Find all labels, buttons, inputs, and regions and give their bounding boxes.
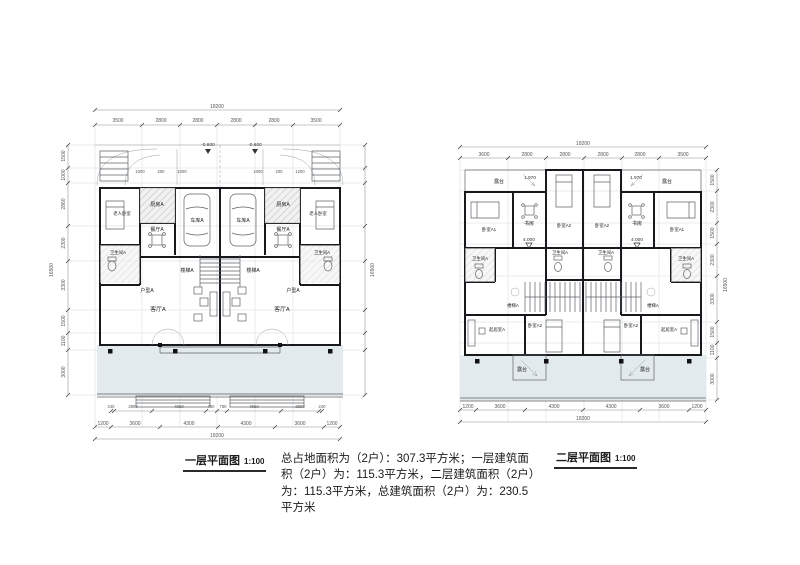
dim-label: 2800 bbox=[634, 152, 645, 158]
dim-label: 2800 bbox=[268, 118, 279, 124]
dim-label: 1100 bbox=[61, 335, 67, 346]
room-label-terrace: 露台 bbox=[494, 178, 504, 185]
room-label-terrace: 露台 bbox=[517, 366, 527, 373]
level-mark: 4.000 bbox=[631, 237, 643, 243]
dim-label: 1000 bbox=[135, 169, 145, 174]
dim-label: 3500 bbox=[677, 152, 688, 158]
dim-label: 3600 bbox=[294, 421, 305, 427]
dim-label: 2800 bbox=[559, 152, 570, 158]
entry-steps-right bbox=[312, 151, 340, 181]
dim-label: 4300 bbox=[548, 404, 559, 410]
dim-label: 1000 bbox=[61, 169, 67, 180]
slope-mark: 1.970 bbox=[524, 175, 536, 181]
room-label-study: 书房 bbox=[632, 220, 642, 227]
plan2-caption-title: 二层平面图 bbox=[556, 452, 611, 464]
dim-label: 16500 bbox=[370, 263, 376, 277]
stair-tag bbox=[511, 288, 519, 296]
dim-label: 2800 bbox=[192, 118, 203, 124]
room-label-stairs: 楼梯A bbox=[507, 302, 519, 309]
room-label-bedroom2: 卧室A2 bbox=[557, 222, 572, 229]
dining-table-icon bbox=[275, 233, 292, 248]
dim-label: 18200 bbox=[210, 433, 224, 439]
dim-label: 1000 bbox=[253, 169, 263, 174]
dim-label: 2860 bbox=[61, 198, 67, 209]
bed-icon bbox=[546, 320, 562, 352]
room-label-living: 起居室A bbox=[661, 326, 677, 333]
dim-label: 240 bbox=[108, 404, 116, 409]
dim-label: 4050 bbox=[174, 404, 184, 409]
room-label-bathroom: 卫生间A bbox=[472, 255, 488, 262]
dim-label: 2800 bbox=[155, 118, 166, 124]
dim-label: 1000 bbox=[177, 169, 187, 174]
dim-label: 2300 bbox=[710, 201, 716, 212]
dim-label: 2800 bbox=[521, 152, 532, 158]
dim-label: 200 bbox=[276, 169, 284, 174]
dim-label: 1200 bbox=[691, 404, 702, 410]
room-label-bathroom: 卫生间A bbox=[552, 249, 568, 256]
room-label-terrace: 露台 bbox=[640, 366, 650, 373]
plan1-caption: 一层平面图1:100 bbox=[183, 452, 266, 472]
stairs-treads bbox=[586, 282, 641, 312]
dim-label: 2300 bbox=[61, 237, 67, 248]
dim-label: 2800 bbox=[230, 118, 241, 124]
room-label-dining: 餐厅A bbox=[276, 226, 290, 233]
dim-label: 1500 bbox=[710, 227, 716, 238]
dim-label: 1200 bbox=[295, 169, 305, 174]
bed-icon bbox=[667, 202, 695, 218]
stair-tag bbox=[647, 288, 655, 296]
room-label-bathroom: 卫生间A bbox=[598, 249, 614, 256]
dim-label: 3500 bbox=[310, 118, 321, 124]
room-label-bathroom: 卫生间A bbox=[678, 255, 694, 262]
room-label-bedroom2: 卧室A2 bbox=[624, 322, 639, 329]
dim-label: 3300 bbox=[710, 293, 716, 304]
toilet-icon bbox=[554, 256, 562, 272]
plan1-caption-title: 一层平面图 bbox=[185, 455, 240, 467]
bath-hatch bbox=[671, 248, 701, 282]
dim-label: 16500 bbox=[723, 278, 729, 292]
room-label-elder-bedroom: 老人卧室 bbox=[113, 210, 131, 217]
dim-label: 18200 bbox=[576, 141, 590, 147]
room-label-living: 起居室A bbox=[489, 326, 505, 333]
dim-label: 4300 bbox=[183, 421, 194, 427]
room-label-study: 书房 bbox=[524, 220, 534, 227]
dim-label: 240 bbox=[319, 404, 327, 409]
unit-label: 户型A bbox=[286, 287, 300, 294]
dim-label: 4300 bbox=[605, 404, 616, 410]
study-table-icon bbox=[629, 204, 645, 219]
dim-label: 200 bbox=[158, 169, 166, 174]
dim-label: 4050 bbox=[249, 404, 259, 409]
dim-label: 3000 bbox=[61, 366, 67, 377]
dim-label: 750 bbox=[208, 404, 216, 409]
sofa-set-icon bbox=[468, 320, 485, 346]
dim-label: 3600 bbox=[129, 421, 140, 427]
plan2-caption: 二层平面图1:100 bbox=[554, 449, 637, 469]
room-label-elder-bedroom: 老人卧室 bbox=[309, 210, 327, 217]
dim-label: 1100 bbox=[710, 344, 716, 355]
dim-label: 3500 bbox=[112, 118, 123, 124]
room-label-bedroom1: 卧室A1 bbox=[482, 226, 497, 233]
bed-icon bbox=[471, 202, 499, 218]
drawing-sheet: 18200 3500 2800 2800 2800 2800 3500 1000… bbox=[0, 0, 800, 565]
stairs-treads bbox=[525, 282, 580, 312]
room-label-bedroom1: 卧室A1 bbox=[670, 226, 685, 233]
room-label-stairs: 楼梯A bbox=[180, 267, 194, 274]
dim-label: 2300 bbox=[710, 254, 716, 265]
room-label-terrace: 露台 bbox=[662, 178, 672, 185]
bed-icon bbox=[604, 320, 620, 352]
dim-label: 3600 bbox=[494, 404, 505, 410]
entry-steps-left bbox=[100, 151, 128, 181]
dim-label: 2800 bbox=[128, 404, 138, 409]
room-label-bathroom: 卫生间A bbox=[110, 249, 126, 256]
dim-label: 1500 bbox=[710, 326, 716, 337]
dim-label: 1200 bbox=[326, 421, 337, 427]
dim-label: 1200 bbox=[97, 421, 108, 427]
room-label-bedroom2: 卧室A2 bbox=[595, 222, 610, 229]
sofa-set-icon bbox=[681, 320, 698, 346]
dim-label: 18200 bbox=[210, 104, 224, 110]
dim-label: 3600 bbox=[658, 404, 669, 410]
room-label-kitchen: 厨房A bbox=[276, 201, 290, 208]
dim-label: 4300 bbox=[240, 421, 251, 427]
plan1-caption-scale: 1:100 bbox=[244, 457, 264, 466]
dim-label: 750 bbox=[220, 404, 228, 409]
second-floor-plan-drawing: 18200 3600 2800 2800 2800 2800 3500 1500… bbox=[425, 130, 765, 435]
dim-label: 3300 bbox=[61, 279, 67, 290]
sofa-set-icon bbox=[194, 287, 217, 321]
dim-label: 1500 bbox=[61, 315, 67, 326]
dining-table-icon bbox=[149, 233, 166, 248]
level-mark: -0.600 bbox=[201, 142, 215, 148]
bath-hatch bbox=[465, 248, 495, 282]
level-mark: -0.600 bbox=[248, 142, 262, 148]
plan2-caption-scale: 1:100 bbox=[615, 454, 635, 463]
dim-label: 16500 bbox=[49, 263, 55, 277]
room-label-stairs: 楼梯A bbox=[246, 267, 260, 274]
slope-mark: 1.970 bbox=[630, 175, 642, 181]
dim-label: 3000 bbox=[710, 373, 716, 384]
room-label-stairs: 楼梯A bbox=[647, 302, 659, 309]
sofa-set-icon bbox=[223, 287, 246, 321]
area-summary-text: 总占地面积为（2户）：307.3平方米；一层建筑面积（2户）为：115.3平方米… bbox=[281, 451, 537, 516]
room-label-kitchen: 厨房A bbox=[150, 201, 164, 208]
dim-label: 1500 bbox=[61, 150, 67, 161]
level-triangle bbox=[205, 149, 258, 154]
room-label-garage: 车库A bbox=[236, 217, 250, 224]
dim-label: 2800 bbox=[295, 404, 305, 409]
toilet-icon bbox=[604, 256, 612, 272]
room-label-bathroom: 卫生间A bbox=[314, 249, 330, 256]
room-label-living: 客厅A bbox=[150, 305, 166, 313]
dim-label: 18200 bbox=[576, 416, 590, 422]
dim-label: 3600 bbox=[478, 152, 489, 158]
dim-label: 2800 bbox=[597, 152, 608, 158]
first-floor-plan-drawing: 18200 3500 2800 2800 2800 2800 3500 1000… bbox=[40, 95, 400, 447]
room-label-bedroom2: 卧室A2 bbox=[528, 322, 543, 329]
driveway bbox=[95, 145, 343, 187]
level-mark: 4.000 bbox=[523, 237, 535, 243]
study-table-icon bbox=[522, 204, 538, 219]
room-label-living: 客厅A bbox=[274, 305, 290, 313]
unit-label: 户型A bbox=[140, 287, 154, 294]
dim-label: 1500 bbox=[710, 174, 716, 185]
room-label-dining: 餐厅A bbox=[150, 226, 164, 233]
room-label-garage: 车库A bbox=[190, 217, 204, 224]
rear-yard bbox=[460, 355, 706, 400]
dim-label: 1200 bbox=[462, 404, 473, 410]
